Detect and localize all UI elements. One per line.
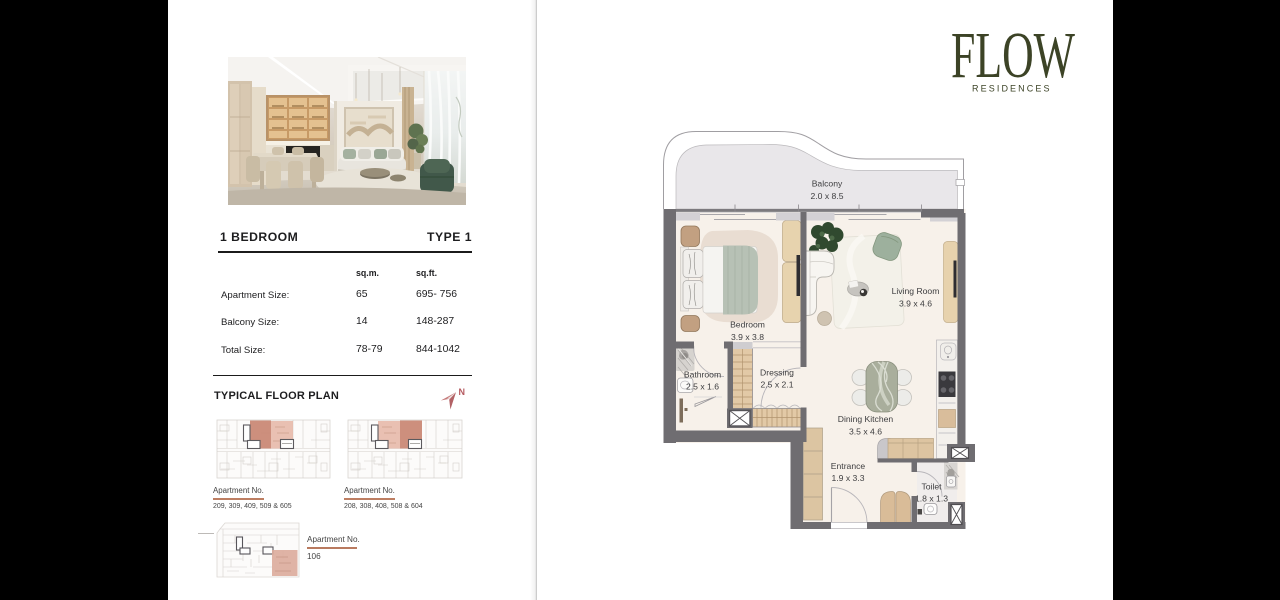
svg-text:2.0 x 8.5: 2.0 x 8.5 bbox=[811, 191, 844, 201]
svg-text:2.5 x 1.6: 2.5 x 1.6 bbox=[686, 382, 719, 392]
svg-text:Bathroom: Bathroom bbox=[684, 370, 721, 380]
svg-text:Living Room: Living Room bbox=[892, 286, 940, 296]
svg-text:Toilet: Toilet bbox=[921, 482, 942, 492]
svg-text:Dining Kitchen: Dining Kitchen bbox=[838, 414, 894, 424]
svg-text:RESIDENCES: RESIDENCES bbox=[972, 84, 1052, 94]
svg-text:1.9 x 3.3: 1.9 x 3.3 bbox=[832, 473, 865, 483]
svg-text:Bedroom: Bedroom bbox=[730, 320, 765, 330]
svg-text:FLOW: FLOW bbox=[951, 28, 1075, 92]
svg-text:3.9 x 3.8: 3.9 x 3.8 bbox=[731, 332, 764, 342]
svg-text:1.8 x 1.3: 1.8 x 1.3 bbox=[915, 494, 948, 504]
svg-text:Entrance: Entrance bbox=[831, 461, 866, 471]
svg-text:3.5 x 4.6: 3.5 x 4.6 bbox=[849, 427, 882, 437]
svg-text:2.5 x 2.1: 2.5 x 2.1 bbox=[761, 380, 794, 390]
svg-text:Dressing: Dressing bbox=[760, 368, 794, 378]
svg-text:Balcony: Balcony bbox=[812, 179, 843, 189]
svg-text:3.9 x 4.6: 3.9 x 4.6 bbox=[899, 299, 932, 309]
svg-text:N: N bbox=[459, 387, 466, 397]
